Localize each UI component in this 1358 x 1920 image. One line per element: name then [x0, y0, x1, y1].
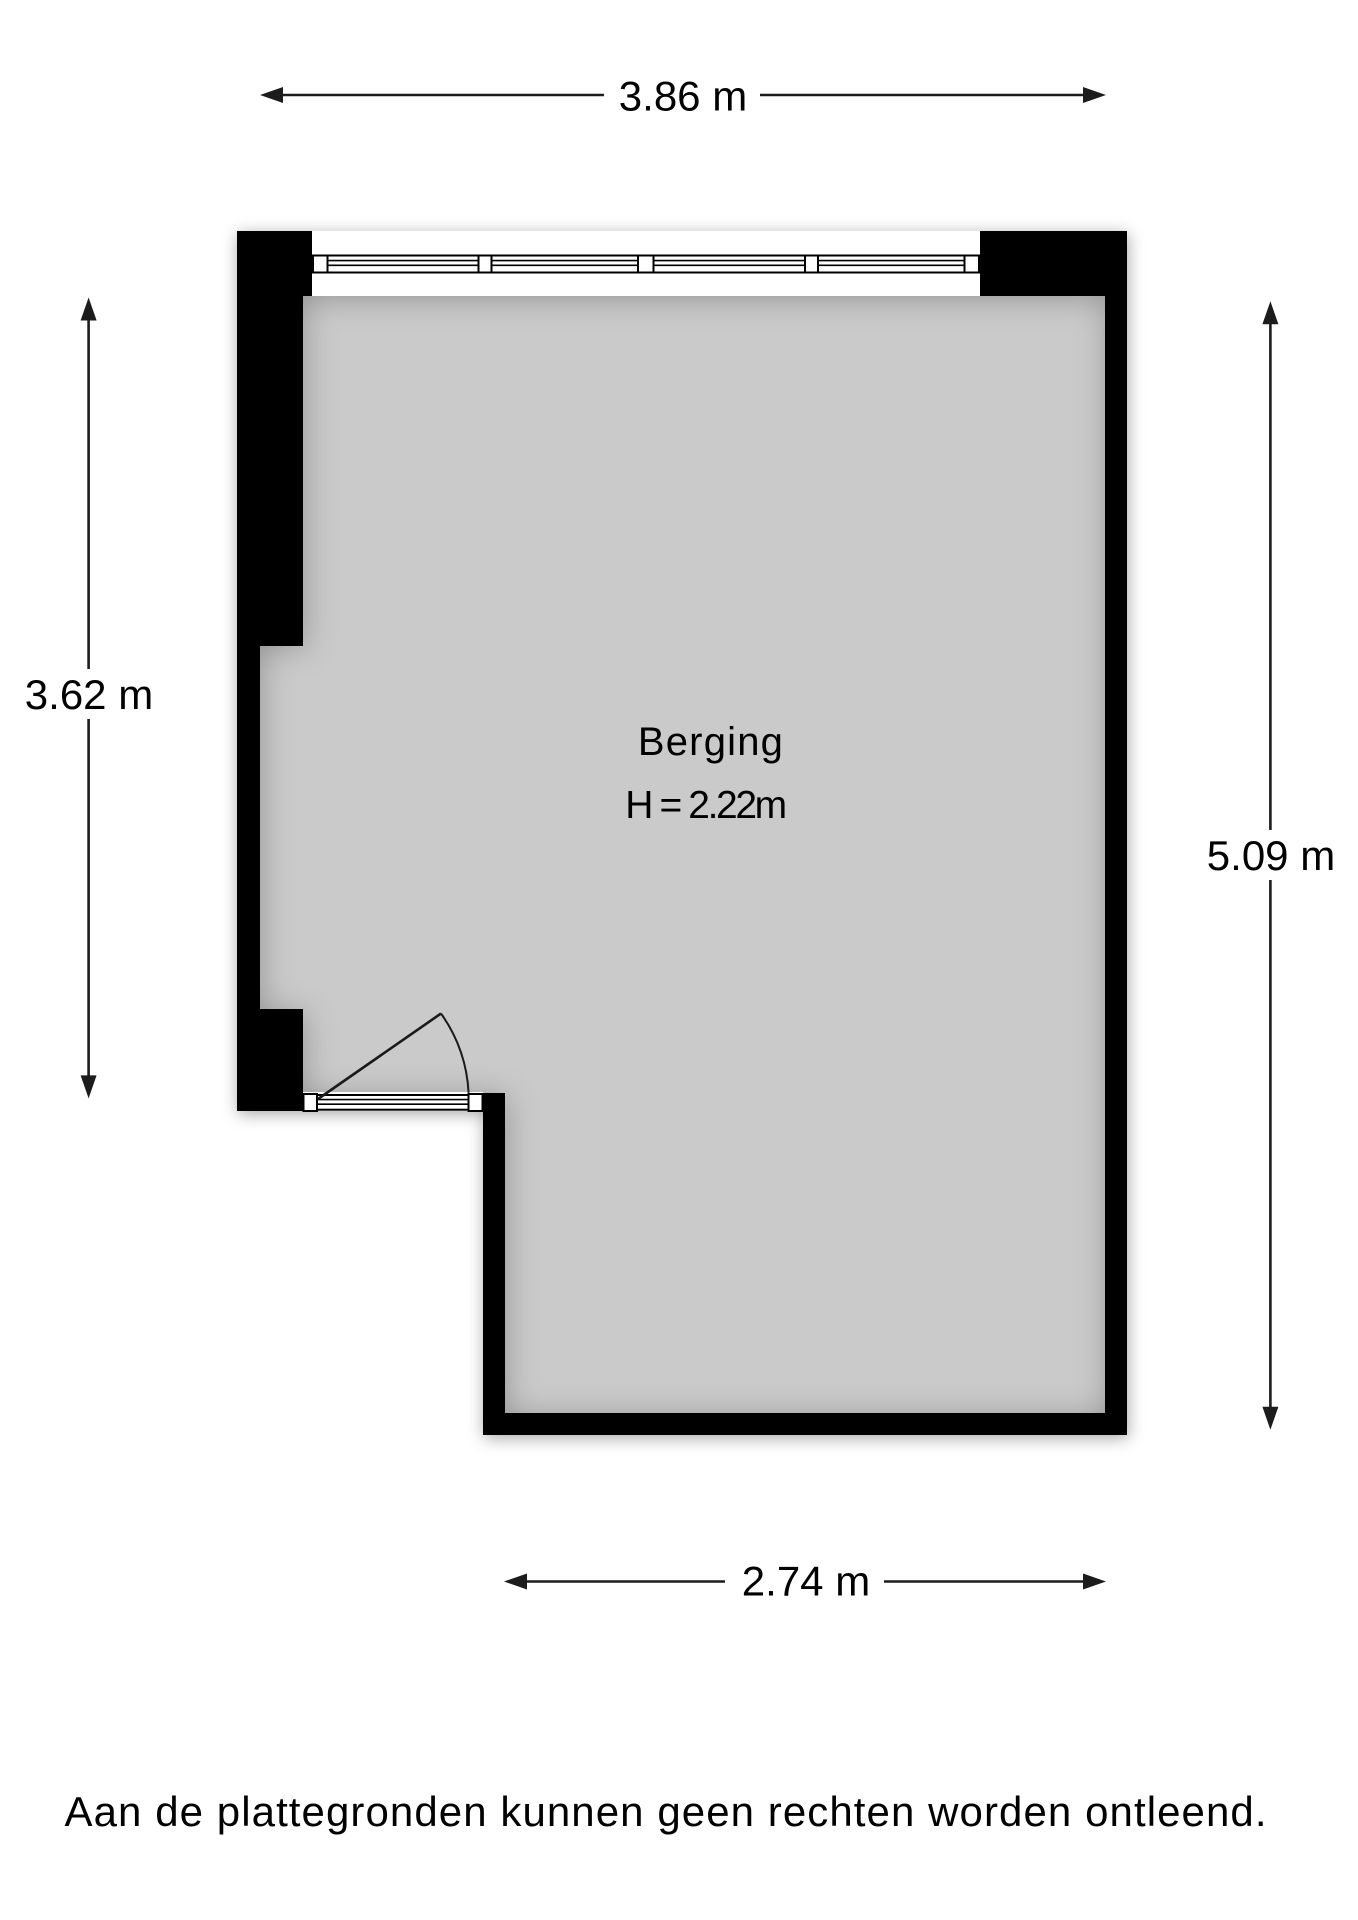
- svg-text:Berging: Berging: [638, 720, 784, 764]
- svg-text:5.09 m: 5.09 m: [1207, 832, 1335, 879]
- svg-text:H = 2.22m: H = 2.22m: [625, 784, 784, 827]
- svg-text:Aan de plattegronden kunnen ge: Aan de plattegronden kunnen geen rechten…: [65, 1788, 1267, 1835]
- svg-text:3.62 m: 3.62 m: [25, 671, 153, 718]
- svg-text:3.86 m: 3.86 m: [619, 73, 747, 120]
- svg-text:2.74 m: 2.74 m: [742, 1558, 870, 1605]
